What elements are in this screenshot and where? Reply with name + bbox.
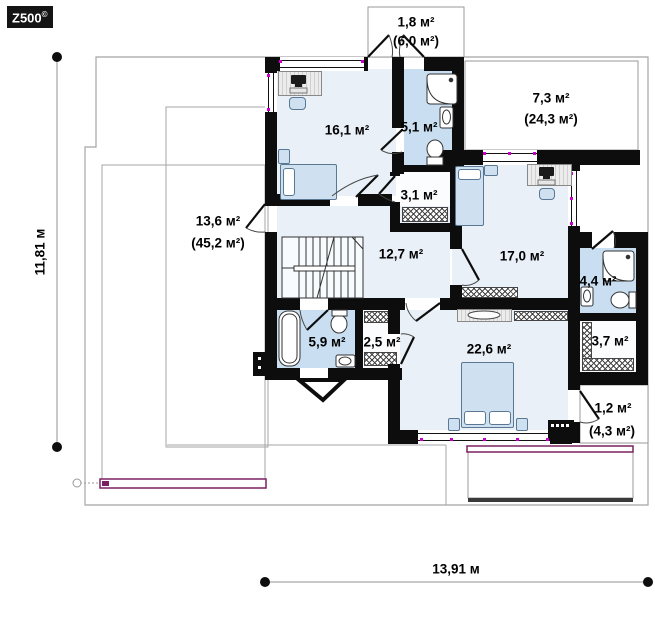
copyright-mark: ©	[42, 10, 48, 19]
room-label: (4,3 м²)	[589, 424, 635, 439]
room-label: 13,6 м²	[196, 214, 241, 229]
floor-plan: 1,8 м² (6,0 м²) 7,3 м² (24,3 м²) 16,1 м²…	[0, 0, 655, 634]
shower-icon	[427, 74, 457, 104]
bathroom-fixtures	[279, 74, 636, 367]
room-label: 5,1 м²	[401, 120, 438, 135]
room-label: (6,0 м²)	[393, 34, 439, 49]
room-label: 7,3 м²	[533, 91, 570, 106]
room-label: 5,9 м²	[309, 335, 346, 350]
room-label: 1,8 м²	[398, 15, 435, 30]
room-label: 4,4 м²	[580, 274, 617, 289]
room-label: 16,1 м²	[325, 123, 370, 138]
room-label: 22,6 м²	[467, 342, 512, 357]
stairs-icon	[282, 237, 363, 298]
sink-icon	[336, 355, 355, 367]
room-label: 3,7 м²	[592, 334, 629, 349]
room-label: 17,0 м²	[500, 249, 545, 264]
dimension-label-width: 13,91 м	[432, 562, 480, 577]
z500-logo: Z500©	[7, 6, 53, 28]
bathtub-icon	[279, 311, 300, 366]
mirror-icon	[468, 311, 500, 319]
dimension-label-height: 11,81 м	[33, 229, 48, 276]
sink-icon	[440, 107, 453, 128]
toilet-icon	[427, 140, 443, 165]
room-label: 3,1 м²	[401, 188, 438, 203]
room-label: 2,5 м²	[364, 335, 401, 350]
toilet-icon	[331, 310, 347, 333]
room-label: 1,2 м²	[595, 401, 632, 416]
room-label: 12,7 м²	[379, 247, 424, 262]
dormer-exit	[299, 380, 344, 400]
toilet-icon	[611, 292, 636, 308]
room-label: (45,2 м²)	[191, 236, 245, 251]
sink-icon	[581, 287, 593, 306]
room-label: (24,3 м²)	[524, 112, 578, 127]
